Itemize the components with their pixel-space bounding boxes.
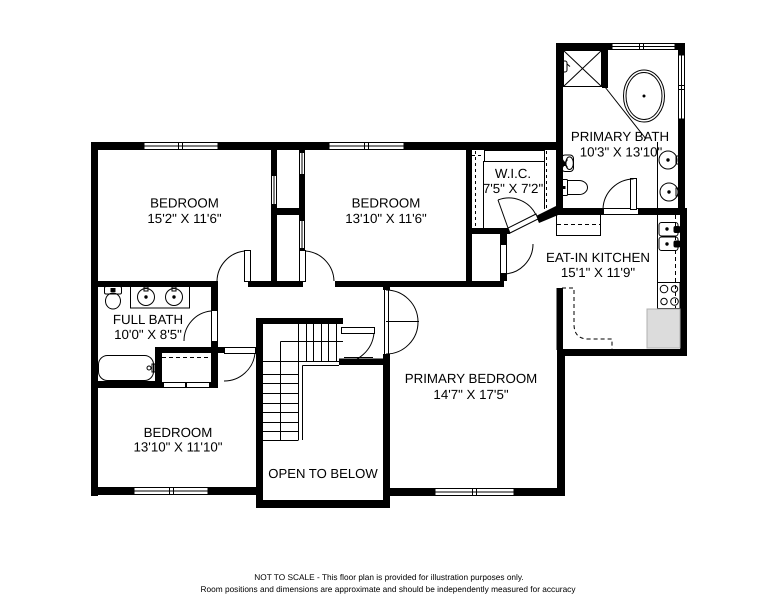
svg-text:13'10" X 11'6": 13'10" X 11'6" (345, 211, 427, 226)
svg-text:10'0" X 8'5": 10'0" X 8'5" (114, 327, 182, 342)
svg-text:7'5" X 7'2": 7'5" X 7'2" (483, 181, 544, 196)
svg-text:W.I.C.: W.I.C. (495, 166, 531, 181)
svg-text:14'7" X 17'5": 14'7" X 17'5" (433, 387, 508, 402)
svg-text:15'2" X 11'6": 15'2" X 11'6" (147, 211, 221, 226)
svg-text:OPEN TO BELOW: OPEN TO BELOW (268, 466, 378, 481)
svg-text:13'10" X 11'10": 13'10" X 11'10" (134, 440, 223, 455)
svg-text:10'3" X 13'10": 10'3" X 13'10" (580, 145, 663, 160)
svg-text:PRIMARY BEDROOM: PRIMARY BEDROOM (405, 371, 538, 386)
svg-text:Room positions and dimensions: Room positions and dimensions are approx… (201, 584, 577, 594)
svg-text:BEDROOM: BEDROOM (352, 196, 421, 211)
svg-text:FULL BATH: FULL BATH (113, 312, 183, 327)
svg-text:EAT-IN KITCHEN: EAT-IN KITCHEN (546, 250, 650, 265)
svg-text:BEDROOM: BEDROOM (144, 425, 213, 440)
svg-text:15'1" X 11'9": 15'1" X 11'9" (561, 265, 635, 280)
svg-text:PRIMARY BATH: PRIMARY BATH (571, 129, 669, 144)
svg-text:NOT TO SCALE - This floor plan: NOT TO SCALE - This floor plan is provid… (254, 572, 523, 582)
svg-text:BEDROOM: BEDROOM (150, 196, 219, 211)
